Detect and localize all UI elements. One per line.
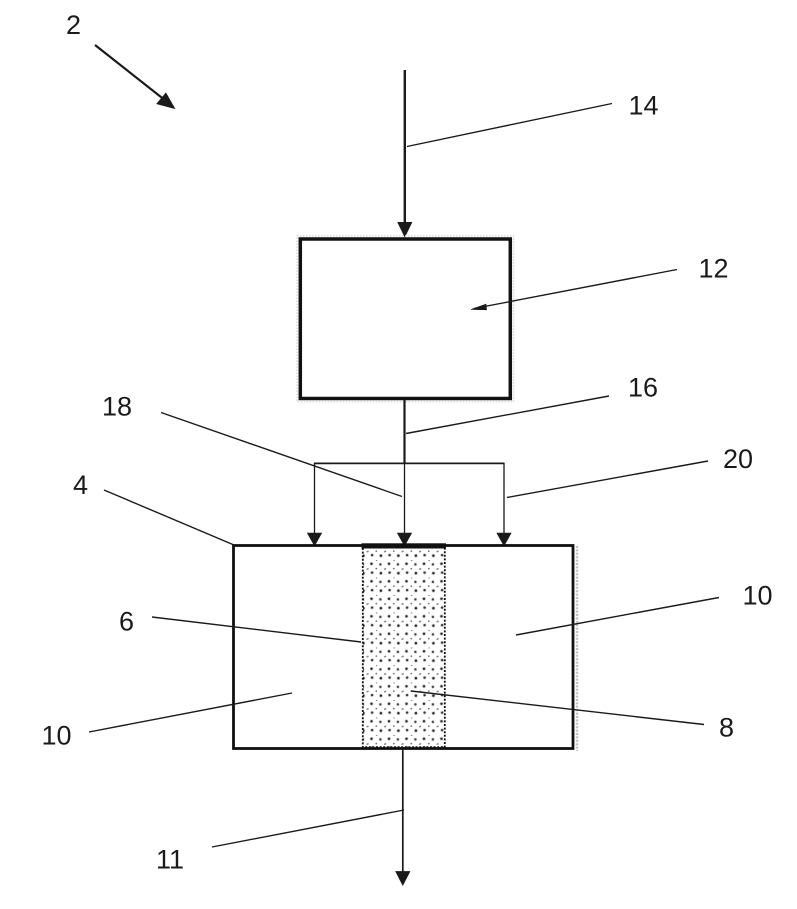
svg-text:11: 11 [156,845,184,875]
svg-text:2: 2 [66,10,81,40]
svg-text:10: 10 [742,581,772,611]
svg-text:6: 6 [119,607,134,637]
svg-text:4: 4 [73,470,88,500]
svg-text:18: 18 [102,392,132,422]
svg-text:14: 14 [628,91,658,121]
svg-text:16: 16 [628,373,658,403]
svg-text:12: 12 [698,254,728,284]
svg-text:8: 8 [719,713,734,743]
svg-text:10: 10 [41,721,71,751]
svg-text:20: 20 [723,444,753,474]
